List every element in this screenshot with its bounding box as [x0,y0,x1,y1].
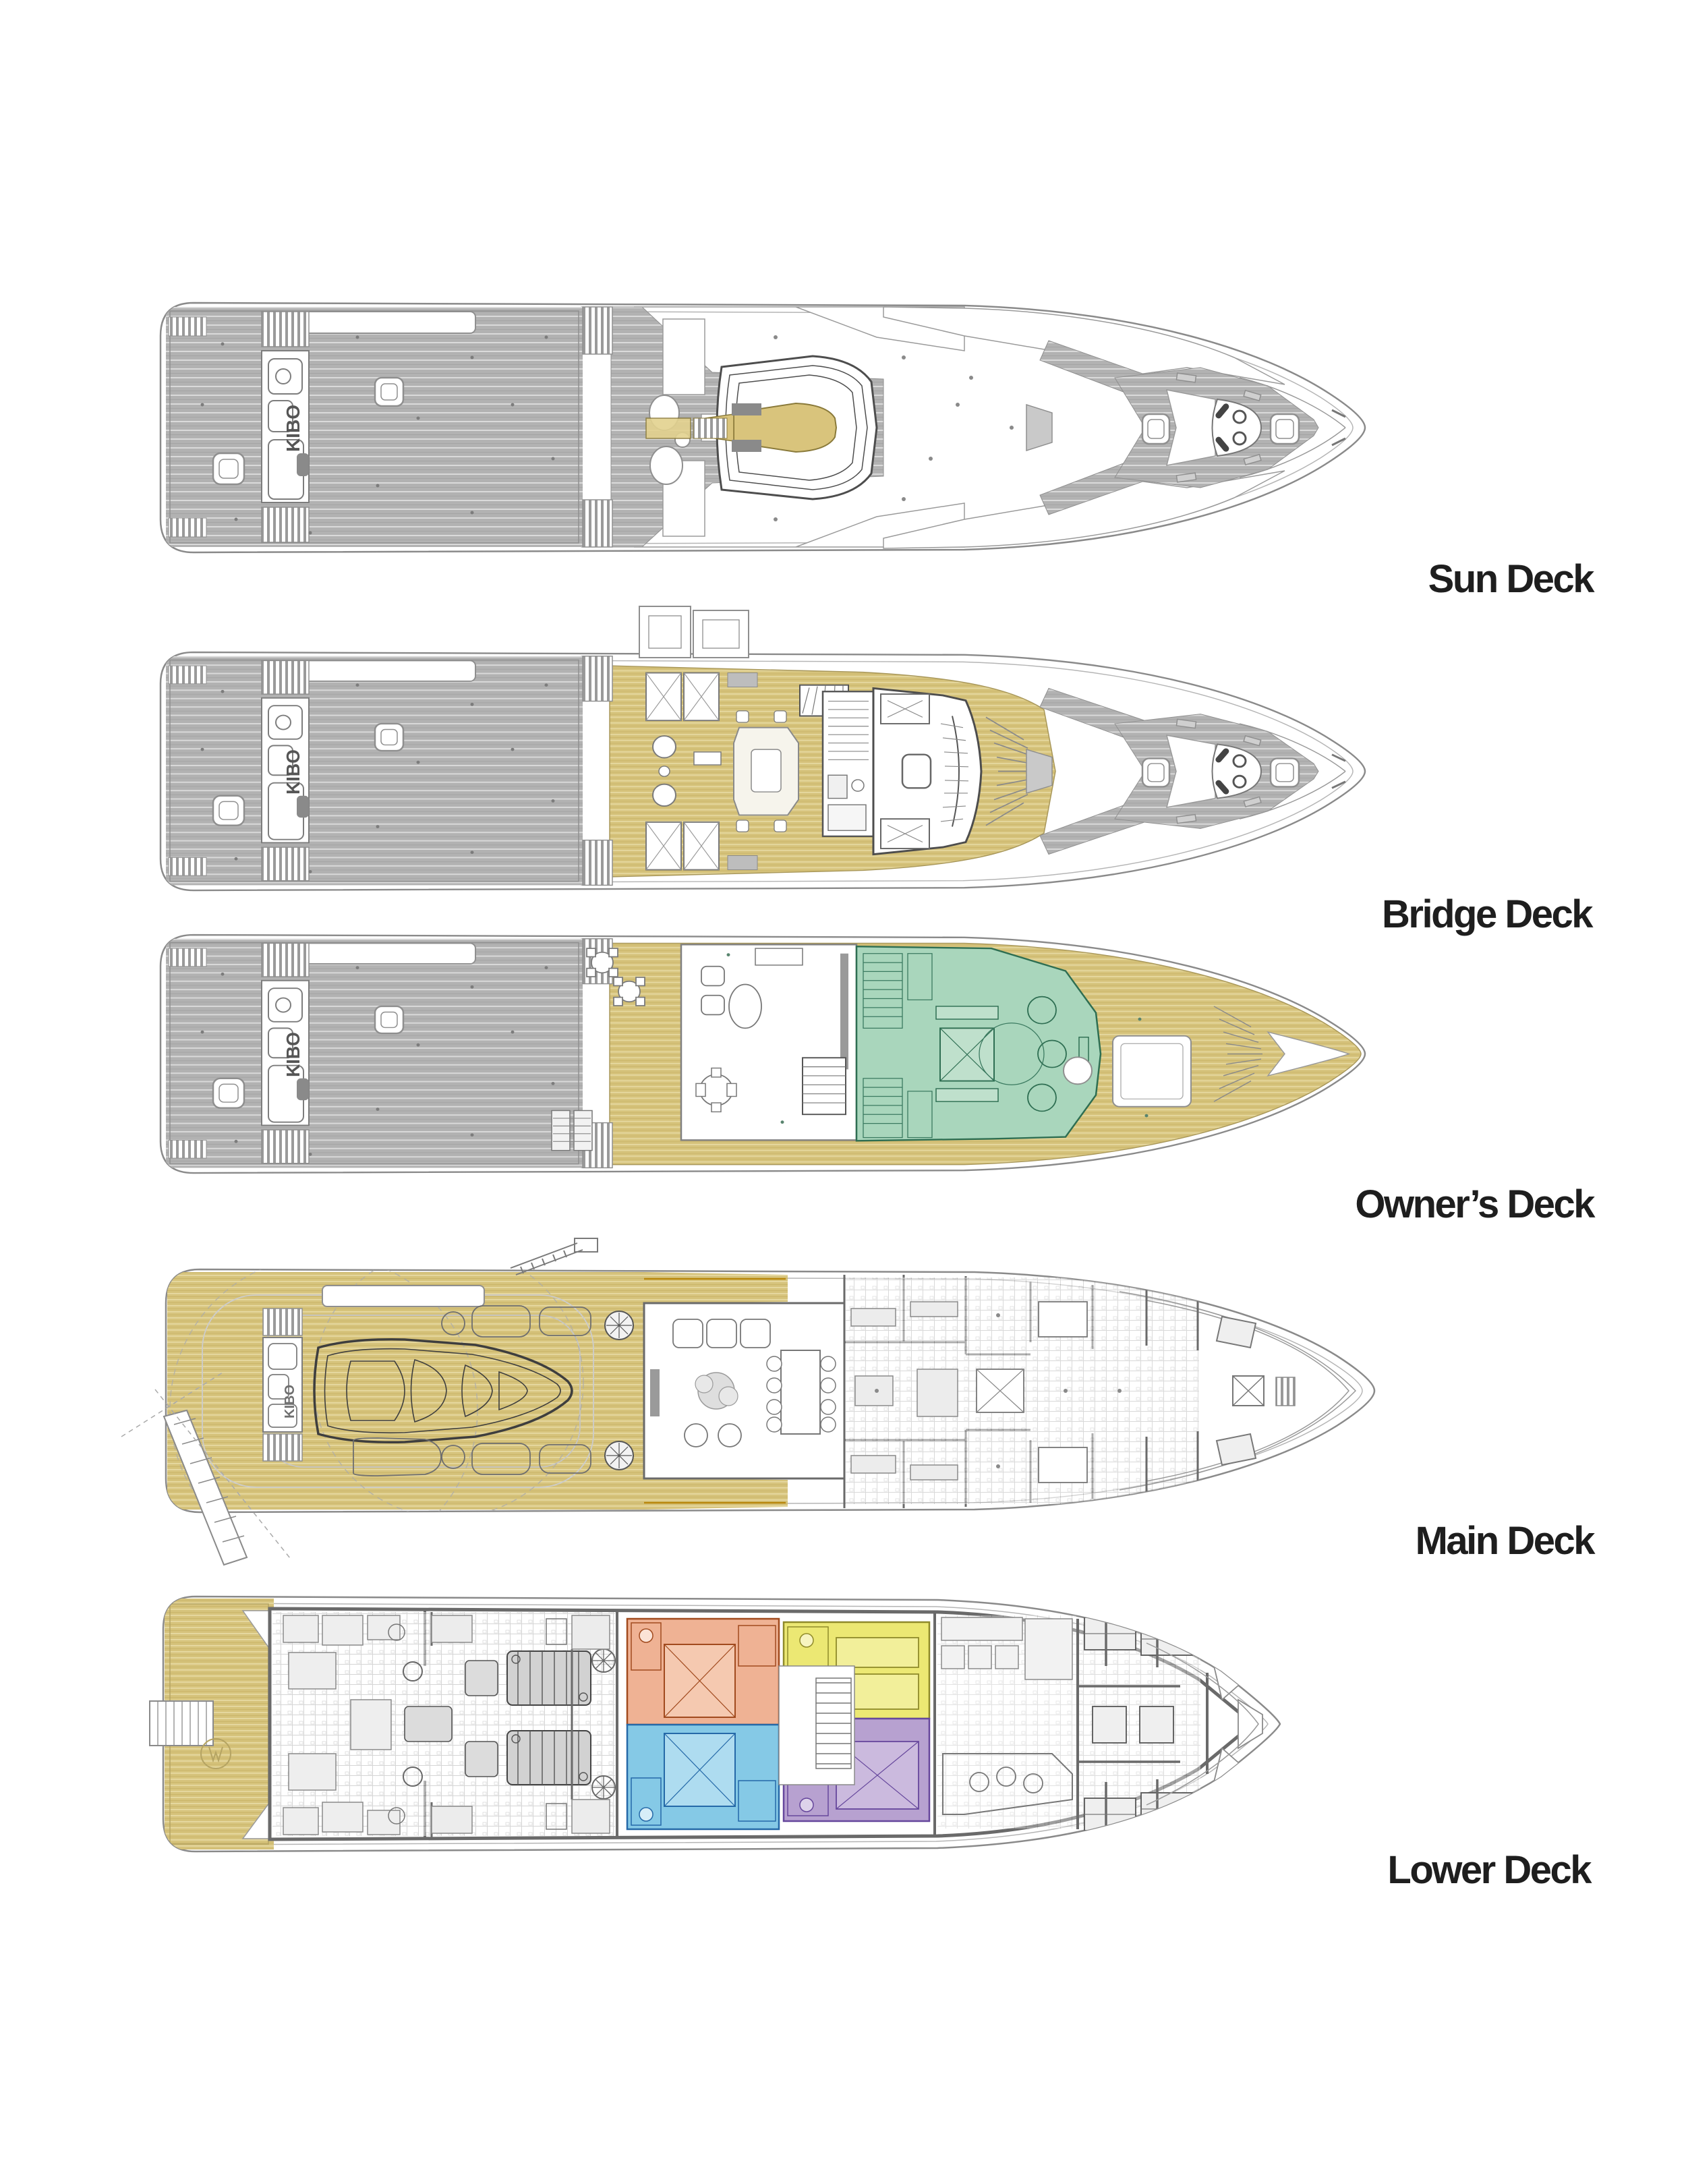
svg-text:Bridge Deck: Bridge Deck [1382,892,1594,936]
svg-text:Lower Deck: Lower Deck [1387,1848,1592,1892]
svg-text:Main Deck: Main Deck [1416,1519,1596,1563]
svg-text:Owner’s Deck: Owner’s Deck [1355,1182,1596,1226]
svg-text:KIBO: KIBO [283,1385,297,1418]
svg-text:Sun Deck: Sun Deck [1428,557,1596,601]
